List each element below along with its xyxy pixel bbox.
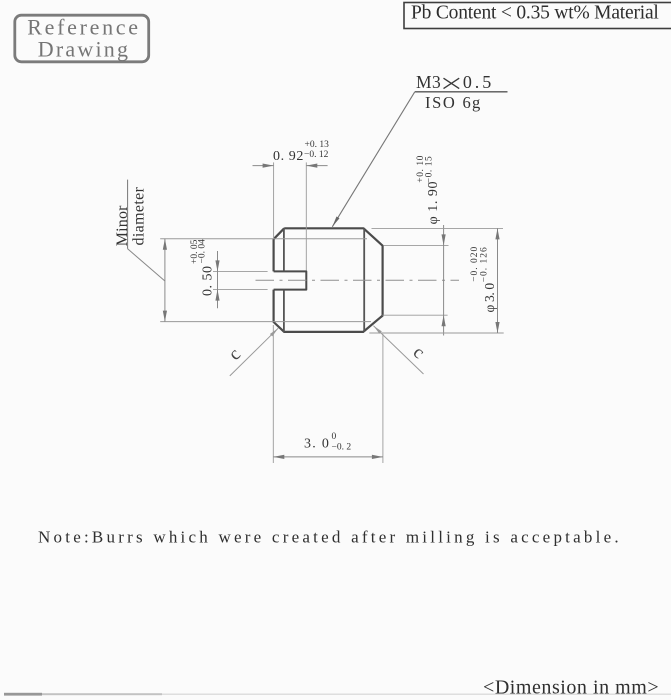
svg-text:6g: 6g bbox=[463, 93, 482, 112]
svg-text:−0. 2: −0. 2 bbox=[332, 442, 352, 452]
svg-text:Drawing: Drawing bbox=[38, 37, 130, 62]
svg-text:−0. 126: −0. 126 bbox=[479, 246, 489, 282]
svg-text:diameter: diameter bbox=[130, 186, 147, 245]
svg-text:0. 50: 0. 50 bbox=[201, 266, 216, 297]
svg-text:−0. 04: −0. 04 bbox=[198, 239, 208, 264]
svg-text:<Dimension in mm>: <Dimension in mm> bbox=[483, 677, 659, 699]
svg-text:φ 3. 0: φ 3. 0 bbox=[482, 283, 497, 313]
svg-text:−0. 15: −0. 15 bbox=[425, 156, 435, 184]
svg-text:−0. 12: −0. 12 bbox=[304, 150, 329, 160]
svg-text:−0. 020: −0. 020 bbox=[470, 246, 480, 282]
svg-text:+0. 13: +0. 13 bbox=[305, 140, 330, 150]
svg-text:M3: M3 bbox=[416, 72, 441, 92]
svg-text:Minor: Minor bbox=[114, 205, 131, 246]
svg-text:0: 0 bbox=[332, 432, 337, 442]
svg-text:φ 1. 90: φ 1. 90 bbox=[426, 181, 441, 224]
svg-text:0. 92: 0. 92 bbox=[273, 149, 304, 164]
svg-text:3. 0: 3. 0 bbox=[304, 437, 330, 452]
svg-text:Note:Burrs which were created: Note:Burrs which were created after mill… bbox=[38, 528, 622, 547]
svg-text:Pb Content < 0.35 wt% Material: Pb Content < 0.35 wt% Material bbox=[411, 3, 659, 24]
svg-text:0.5: 0.5 bbox=[463, 72, 494, 92]
svg-text:ISO: ISO bbox=[425, 93, 456, 112]
